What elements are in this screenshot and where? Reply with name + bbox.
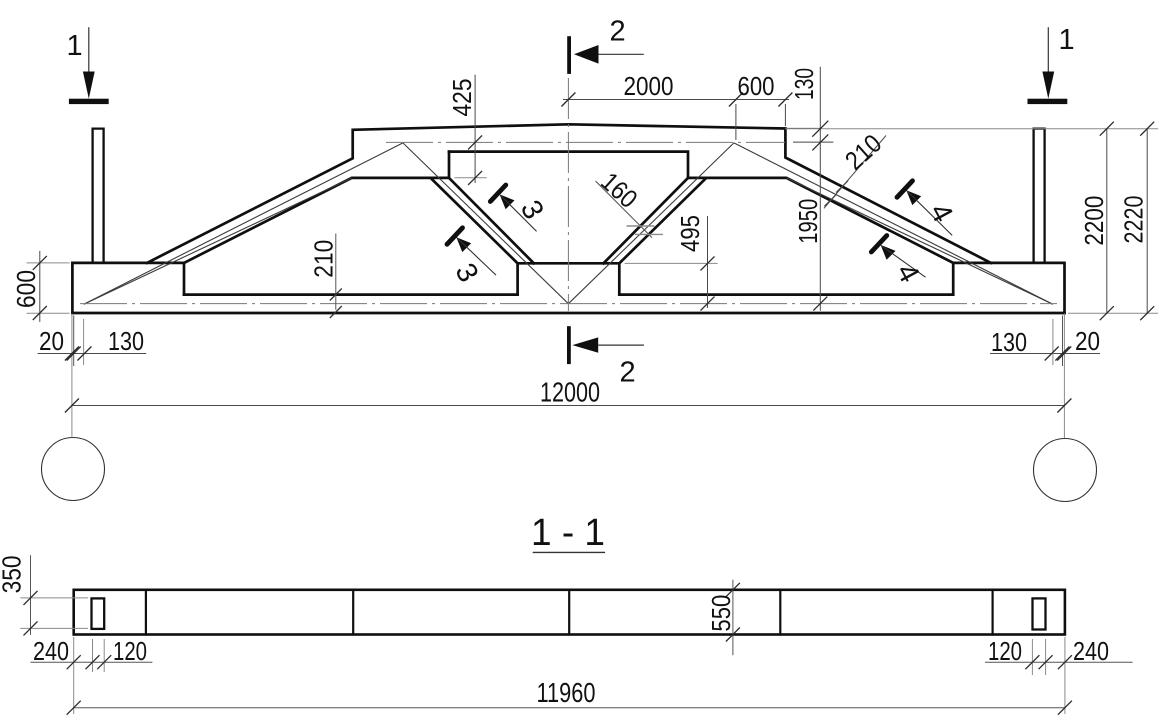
svg-text:12000: 12000: [540, 377, 600, 408]
svg-text:2000: 2000: [624, 71, 674, 101]
svg-text:20: 20: [39, 326, 64, 356]
svg-text:120: 120: [988, 636, 1022, 666]
svg-text:600: 600: [738, 71, 775, 101]
svg-text:11960: 11960: [537, 677, 596, 708]
svg-text:1: 1: [1059, 24, 1075, 56]
svg-text:2: 2: [610, 16, 626, 48]
svg-text:600: 600: [11, 270, 41, 308]
svg-text:120: 120: [113, 636, 147, 666]
svg-text:1950: 1950: [793, 199, 823, 244]
svg-text:210: 210: [309, 240, 339, 278]
svg-text:130: 130: [108, 326, 144, 356]
svg-text:550: 550: [706, 595, 736, 632]
svg-text:2: 2: [620, 356, 636, 388]
svg-text:1 - 1: 1 - 1: [531, 512, 605, 554]
svg-text:1: 1: [67, 30, 83, 62]
svg-text:130: 130: [789, 68, 819, 100]
svg-text:240: 240: [1073, 636, 1109, 666]
svg-text:130: 130: [991, 327, 1027, 357]
svg-text:240: 240: [33, 636, 69, 666]
svg-text:425: 425: [447, 79, 477, 117]
svg-text:20: 20: [1075, 326, 1100, 356]
svg-text:495: 495: [675, 215, 705, 252]
svg-text:350: 350: [0, 555, 26, 593]
svg-text:2200: 2200: [1079, 196, 1109, 246]
svg-text:2220: 2220: [1119, 196, 1149, 244]
